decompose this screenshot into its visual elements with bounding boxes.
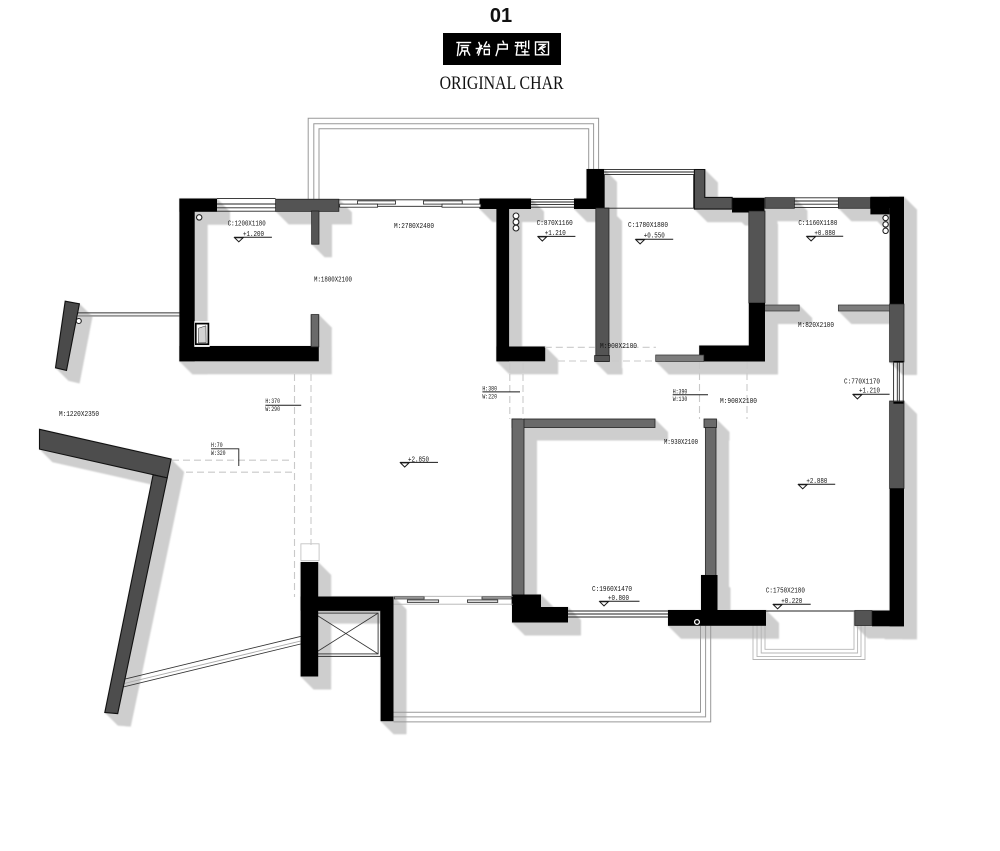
svg-text:W:220: W:220 [482,393,497,400]
svg-text:C:770X1170: C:770X1170 [844,379,880,387]
svg-text:+0.880: +0.880 [814,230,835,238]
svg-text:H:370: H:370 [265,398,280,405]
svg-text:M:820X2100: M:820X2100 [798,322,834,330]
svg-text:C:1200X1180: C:1200X1180 [228,221,266,229]
svg-text:M:900X2100: M:900X2100 [720,398,757,406]
svg-text:M:900X2100: M:900X2100 [600,343,637,351]
svg-text:W:290: W:290 [265,406,280,413]
svg-text:C:1780X1800: C:1780X1800 [628,222,668,230]
svg-text:W:130: W:130 [673,396,688,403]
svg-text:ORIGINAL CHAR: ORIGINAL CHAR [440,73,564,94]
svg-text:W:320: W:320 [211,450,226,457]
svg-text:M:1220X2350: M:1220X2350 [59,411,99,419]
svg-text:M:2780X2400: M:2780X2400 [394,223,434,231]
svg-text:C:1160X1180: C:1160X1180 [798,220,837,228]
svg-text:+1.210: +1.210 [545,230,566,238]
svg-text:M:1800X2100: M:1800X2100 [314,276,352,284]
svg-text:01: 01 [490,5,512,27]
svg-text:M:930X2100: M:930X2100 [664,439,698,447]
svg-text:+0.220: +0.220 [781,598,802,606]
svg-text:+2.880: +2.880 [806,478,827,486]
svg-text:C:1960X1470: C:1960X1470 [592,586,632,594]
svg-text:C:1750X2180: C:1750X2180 [766,588,805,596]
svg-text:C:870X1160: C:870X1160 [537,220,573,228]
svg-text:+0.800: +0.800 [608,595,629,603]
svg-text:+2.850: +2.850 [408,456,429,464]
svg-text:H:70: H:70 [211,442,223,449]
